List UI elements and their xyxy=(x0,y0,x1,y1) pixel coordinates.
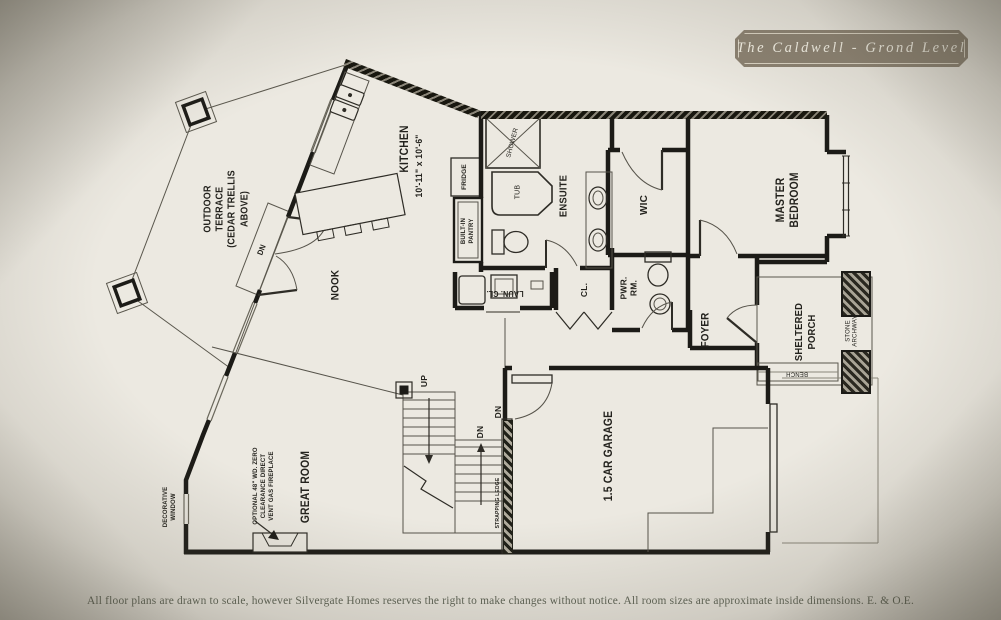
garage-walls xyxy=(184,368,878,553)
room-label-master-bedroom: MASTER BEDROOM xyxy=(774,172,802,227)
stone-pier-south xyxy=(841,350,871,394)
stairs xyxy=(396,382,505,533)
room-label-ensuite: ENSUITE xyxy=(558,175,571,217)
room-label-foyer: FOYER xyxy=(699,312,712,347)
strapping-ledge-label: STRAPPING LEDGE xyxy=(495,478,501,529)
plan-title: The Caldwell - Grond Level xyxy=(737,40,967,57)
kitchen-dimensions: 10'-11" x 10'-6" xyxy=(414,134,426,197)
room-label-great-room: GREAT ROOM xyxy=(299,451,313,523)
stone-archway-label: STONE ARCHWAY xyxy=(846,315,861,346)
strapping-ledge-wall-hatch xyxy=(503,420,513,554)
room-label-kitchen: KITCHEN xyxy=(398,125,412,172)
floorplan-page: { "title_badge": { "text": "The Caldwell… xyxy=(0,0,1001,620)
room-label-wic: WIC xyxy=(639,195,651,215)
decorative-window-label: DECORATIVE WINDOW xyxy=(162,487,178,528)
ensuite-fixtures xyxy=(486,118,612,268)
stone-pier-north xyxy=(841,271,871,317)
up-label: UP xyxy=(419,375,429,387)
room-label-nook: NOOK xyxy=(329,270,342,300)
room-label-garage: 1.5 CAR GARAGE xyxy=(602,411,616,502)
room-label-outdoor-terrace: OUTDOOR TERRACE (CEDAR TRELLIS ABOVE) xyxy=(203,170,252,248)
laundry-closet-label: LAUN. CL. xyxy=(486,288,523,298)
tub-label: TUB xyxy=(515,185,524,200)
dn-stairs-label: DN xyxy=(475,426,485,439)
master-bay-window xyxy=(827,115,850,256)
title-badge: The Caldwell - Grond Level xyxy=(735,30,968,67)
closet-label: CL. xyxy=(579,283,589,297)
fireplace-note: OPTIONAL 48" WD. ZERO CLEARANCE DIRECT V… xyxy=(252,447,276,524)
disclaimer-text: All floor plans are drawn to scale, howe… xyxy=(0,595,1001,607)
powder-room-label: PWR. RM. xyxy=(619,277,640,300)
dn-garage-label: DN xyxy=(493,406,503,419)
bench-label: BENCH xyxy=(786,369,808,376)
title-badge-border: The Caldwell - Grond Level xyxy=(738,33,965,64)
room-label-sheltered-porch: SHELTERED PORCH xyxy=(793,303,819,361)
great-room-features xyxy=(253,521,307,552)
stone-top-wall-hatch xyxy=(481,111,827,119)
pantry-label: BUILT-IN PANTRY xyxy=(460,218,476,244)
fridge-label: FRIDGE xyxy=(461,164,469,190)
